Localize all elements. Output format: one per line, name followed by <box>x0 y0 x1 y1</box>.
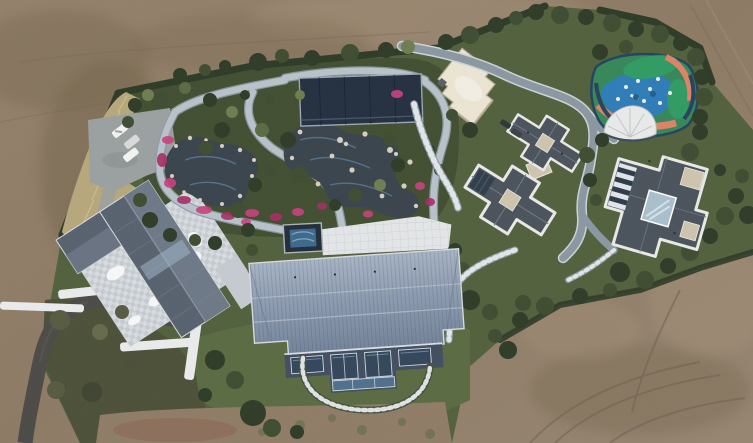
aerial-photo-canvas <box>0 0 753 443</box>
aerial-photo <box>0 0 753 443</box>
photo-grain <box>0 0 753 443</box>
